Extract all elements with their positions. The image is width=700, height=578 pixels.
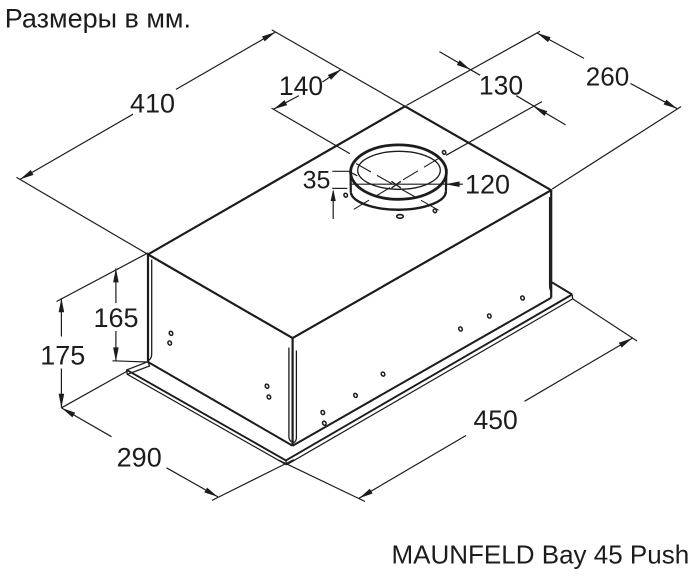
- svg-text:MAUNFELD Bay 45 Push: MAUNFELD Bay 45 Push: [392, 540, 690, 570]
- svg-text:450: 450: [473, 405, 517, 435]
- svg-text:120: 120: [465, 170, 510, 200]
- svg-text:260: 260: [586, 61, 629, 91]
- svg-text:Размеры в мм.: Размеры в мм.: [5, 4, 191, 34]
- svg-text:290: 290: [117, 443, 162, 473]
- svg-text:130: 130: [479, 71, 523, 101]
- svg-text:35: 35: [303, 166, 331, 194]
- svg-text:175: 175: [40, 341, 85, 371]
- svg-text:165: 165: [93, 303, 138, 333]
- svg-text:410: 410: [130, 89, 175, 119]
- svg-text:140: 140: [279, 71, 323, 101]
